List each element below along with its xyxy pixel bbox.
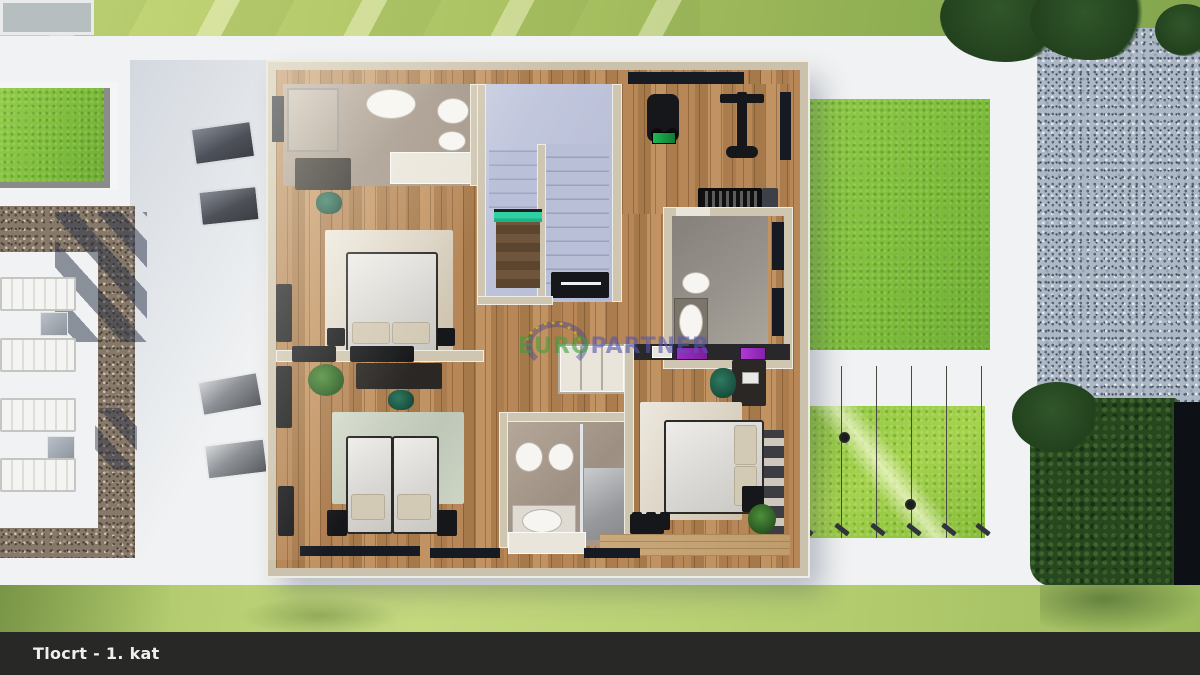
weight-station-base [726,146,758,158]
wall-cabinet [350,346,414,362]
top-lawn-sunlight-streaks [0,0,700,36]
window-band [300,546,420,556]
pergola-lawn-light-streak [793,406,985,538]
wardrobe-divider [601,344,603,390]
pergola-wire [876,366,877,538]
desk-chair [710,368,736,398]
floor-plan-screenshot: ★ ★ ★ ★ ★ ★ ★ ★ ★ EUROPARTNER Tlocrt - 1… [0,0,1200,675]
staircase-lower-flight [496,222,540,288]
shelf-white-box [652,346,672,358]
shower-enclosure [287,88,339,152]
sink-oval [679,304,703,340]
shower-tray [584,468,628,540]
doormat-stripe [561,282,601,285]
nightstand [437,328,455,346]
window-band [780,92,791,160]
window-band [272,96,284,142]
shoe-shelf [276,284,292,342]
shoes [660,512,670,530]
purple-storage-box [676,347,708,360]
pergola-wire [911,366,912,538]
interior-wall [477,84,486,302]
interior-wall [499,412,631,422]
desk-chair [316,192,342,214]
desk-chair [388,390,414,410]
nightstand [327,328,345,346]
pool-lounger [0,398,76,432]
sink-oval [522,509,562,533]
shoe-shelf [278,486,294,536]
shoes [632,512,642,530]
dark-structure [1174,402,1200,608]
window-band [430,548,500,558]
pool-lounger [0,338,76,372]
gym-bench [762,188,778,210]
shoes [646,512,656,530]
bathroom-cabinet [390,152,476,184]
laptop [742,372,759,384]
weight-station-bar [720,94,764,103]
pillow [392,322,430,344]
pergola-wire [946,366,947,538]
neighbor-wall-segment [0,0,94,35]
bidet [548,443,574,471]
terrace-shadow [130,60,270,560]
bottom-lawn-shadow [1040,585,1200,632]
interior-wall [499,412,508,548]
shower-glass [580,424,583,542]
pergola-wire [841,366,842,538]
bike-console [652,132,676,144]
bottom-lawn-strip [0,585,1200,632]
planter-grass-box [0,88,110,188]
toilet [682,272,710,294]
bottom-lawn-shadow [240,596,400,632]
render-scene: ★ ★ ★ ★ ★ ★ ★ ★ ★ EUROPARTNER [0,0,1200,632]
gym-window-band [628,72,744,84]
potted-plant [748,504,776,534]
purple-storage-box [740,347,766,360]
wardrobe-divider [580,344,582,390]
side-table [47,436,75,460]
pillow [397,494,431,520]
desk [356,363,442,389]
side-table [40,312,68,336]
stair-glass-teal-accent [494,209,542,222]
bottom-lawn-shadow [0,585,170,632]
door-opening [676,208,710,216]
tree-canopy [1012,382,1102,452]
ground-light [905,499,916,510]
bench-white [508,532,586,554]
gravel-border-bottom-arm [0,528,112,558]
shoe-shelf [276,366,292,428]
window-band [772,222,784,270]
toilet [437,98,469,124]
speaker-nightstand [327,510,347,536]
potted-plant [308,364,344,396]
floor-plan-title: Tlocrt - 1. kat [33,644,160,663]
pillow [734,425,757,465]
window-band [772,288,784,336]
staircase-landing-steps [489,150,541,208]
doormat [551,272,609,298]
pool-lounger [0,277,76,311]
interior-wall [477,296,553,305]
interior-wall [612,84,622,302]
pillow [352,322,390,344]
pergola-wire [981,366,982,538]
toilet [515,442,543,472]
hall-wardrobe [558,344,626,394]
bathtub-oval [366,89,416,119]
desk [295,158,351,190]
title-bar: Tlocrt - 1. kat [0,632,1200,675]
garden-lawn-square [793,99,990,350]
wall-cabinet [292,346,336,362]
pillow [351,494,385,520]
bidet [438,131,466,151]
speaker-nightstand [437,510,457,536]
window-band [584,548,640,558]
pool-lounger [0,458,76,492]
ground-light [839,432,850,443]
